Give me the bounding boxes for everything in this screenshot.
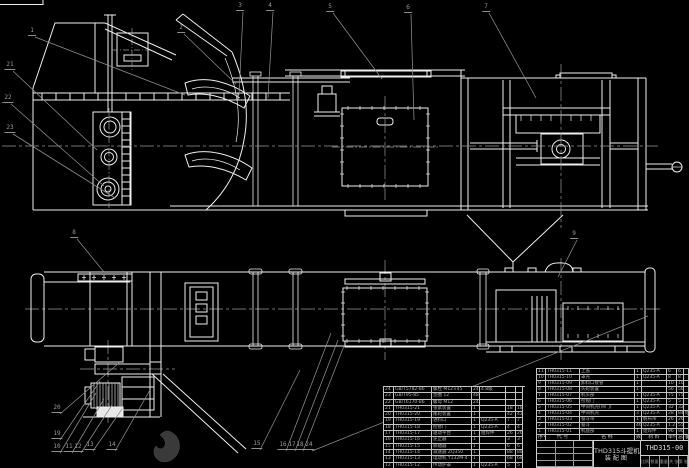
title-block-name-cell: THD315斗提机 装配图 bbox=[593, 441, 641, 467]
bom-table-left: 24GB/T5782-86螺栓 M12×45244.8级23GB/T95-85垫… bbox=[383, 386, 525, 468]
item-balloon-23: 23 bbox=[4, 125, 15, 133]
bom-cell: 5 bbox=[506, 463, 516, 468]
item-balloon-24: 24 bbox=[303, 442, 314, 450]
revision-grid-cell bbox=[574, 461, 593, 468]
item-balloon-22: 22 bbox=[2, 95, 13, 103]
bom-table-right: 11TH0315-11上盖1Q235-A6610TH0315-10罩壳1Q235… bbox=[536, 368, 689, 442]
bom-cell: TH0315-12 bbox=[394, 463, 432, 468]
item-balloon-7: 7 bbox=[482, 4, 490, 12]
view-label: 装配图 bbox=[605, 455, 629, 462]
revision-grid-cell bbox=[537, 461, 556, 468]
title-block-field: 比例 bbox=[641, 456, 650, 467]
item-balloon-3: 3 bbox=[236, 3, 244, 11]
item-balloon-13: 13 bbox=[84, 442, 95, 450]
title-block-number-cell: THD315-00 比例数量重量共 张第 张 bbox=[641, 441, 688, 467]
bom-cell: 传动护罩 bbox=[432, 463, 472, 468]
drawing-number: THD315-00 bbox=[641, 441, 688, 456]
title-block-field: 第 张 bbox=[679, 456, 688, 467]
item-balloon-21: 21 bbox=[4, 62, 15, 70]
item-balloon-14: 14 bbox=[106, 442, 117, 450]
bom-cell: 12 bbox=[384, 463, 394, 468]
title-block: THD315斗提机 装配图 THD315-00 比例数量重量共 张第 张 bbox=[536, 440, 689, 468]
item-balloon-4: 4 bbox=[266, 3, 274, 11]
cad-drawing-sheet: 123456721222389201910111213141516171824 … bbox=[0, 0, 689, 468]
item-balloon-19: 19 bbox=[51, 431, 62, 439]
item-balloon-6: 6 bbox=[404, 5, 412, 13]
title-block-field: 重量 bbox=[660, 456, 669, 467]
bom-row: 12TH0315-12传动护罩1Q235-A55 bbox=[384, 463, 525, 468]
item-balloon-15: 15 bbox=[251, 441, 262, 449]
item-balloon-20: 20 bbox=[51, 405, 62, 413]
item-balloon-10: 10 bbox=[51, 444, 62, 452]
item-balloon-2: 2 bbox=[177, 25, 185, 33]
item-balloon-8: 8 bbox=[70, 230, 78, 238]
title-block-field: 共 张 bbox=[669, 456, 678, 467]
title-block-revision-grid bbox=[537, 441, 593, 467]
title-block-field: 数量 bbox=[650, 456, 659, 467]
item-balloon-1: 1 bbox=[28, 28, 36, 36]
title-block-fields: 比例数量重量共 张第 张 bbox=[641, 456, 688, 467]
item-balloon-9: 9 bbox=[570, 231, 578, 239]
revision-grid-cell bbox=[556, 461, 575, 468]
product-name: THD315斗提机 bbox=[594, 447, 640, 455]
bom-cell: 1 bbox=[472, 463, 480, 468]
bom-cell: 5 bbox=[516, 463, 523, 468]
item-balloon-5: 5 bbox=[326, 4, 334, 12]
item-balloon-12: 12 bbox=[72, 444, 83, 452]
bom-cell: Q235-A bbox=[480, 463, 506, 468]
